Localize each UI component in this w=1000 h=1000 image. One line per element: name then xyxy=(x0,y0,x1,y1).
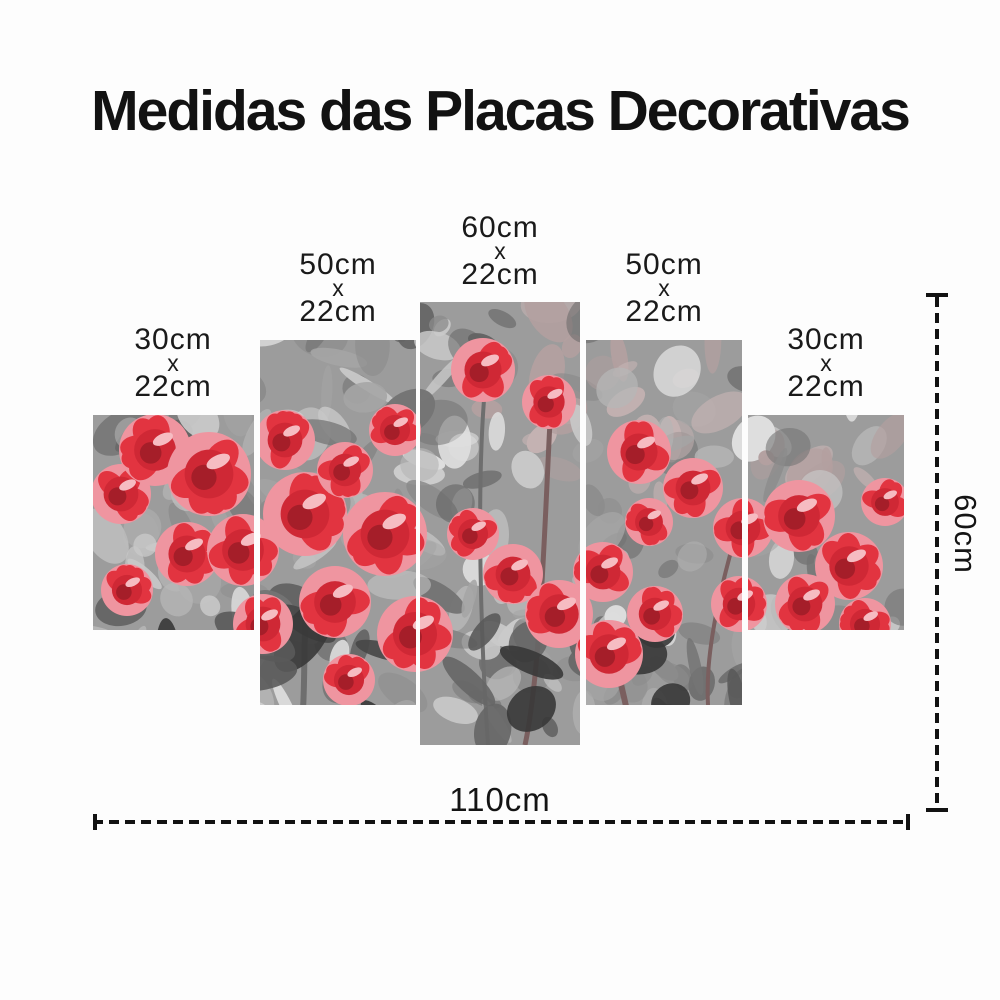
page-title: Medidas das Placas Decorativas xyxy=(0,80,1000,142)
panel-4-height-text: 50cm xyxy=(625,251,702,278)
dimension-endcap xyxy=(93,814,97,830)
total-height-label: 60cm xyxy=(948,489,982,579)
total-width-label: 110cm xyxy=(449,782,551,818)
panel-3-image xyxy=(420,302,580,745)
panel-4-width-text: 22cm xyxy=(625,298,702,325)
panel-1-height-text: 30cm xyxy=(134,326,211,353)
canvas-panel-2 xyxy=(260,340,416,705)
canvas-panel-3 xyxy=(420,302,580,745)
panel-5-image xyxy=(748,415,904,630)
size-label-panel-2: 50cm x 22cm xyxy=(299,251,376,325)
width-dimension-line xyxy=(93,820,910,824)
height-dimension-line xyxy=(935,297,939,808)
panel-3-height-text: 60cm xyxy=(461,214,538,241)
panel-1-image xyxy=(93,415,254,630)
panel-2-width-text: 22cm xyxy=(299,298,376,325)
size-label-panel-1: 30cm x 22cm xyxy=(134,326,211,400)
size-label-panel-4: 50cm x 22cm xyxy=(625,251,702,325)
panel-4-image xyxy=(586,340,742,705)
panel-5-width-text: 22cm xyxy=(787,373,864,400)
panel-2-image xyxy=(260,340,416,705)
panel-5-height-text: 30cm xyxy=(787,326,864,353)
canvas-panel-5 xyxy=(748,415,904,630)
panel-1-width-text: 22cm xyxy=(134,373,211,400)
dimension-endcap xyxy=(906,814,910,830)
dimension-endcap xyxy=(926,808,948,812)
size-label-panel-5: 30cm x 22cm xyxy=(787,326,864,400)
canvas-panel-4 xyxy=(586,340,742,705)
dimension-endcap xyxy=(926,293,948,297)
size-label-panel-3: 60cm x 22cm xyxy=(461,214,538,288)
panel-2-height-text: 50cm xyxy=(299,251,376,278)
panel-3-width-text: 22cm xyxy=(461,261,538,288)
canvas-panel-1 xyxy=(93,415,254,630)
